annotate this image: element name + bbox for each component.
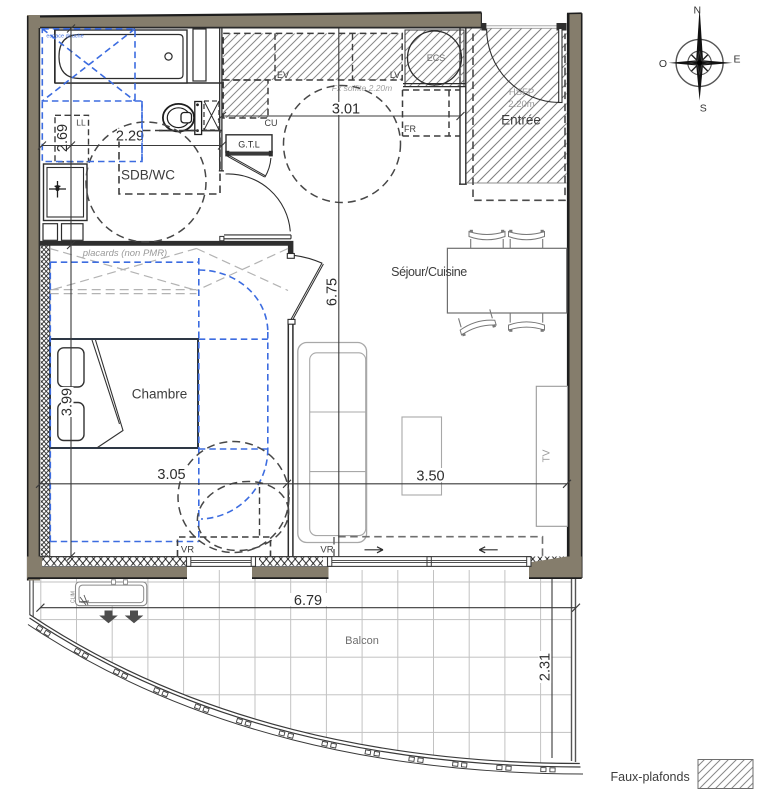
svg-text:HSFP: HSFP <box>509 87 534 98</box>
svg-text:Balcon: Balcon <box>345 635 379 647</box>
svg-text:S: S <box>700 103 707 115</box>
svg-text:VR: VR <box>181 545 194 556</box>
svg-text:3.50: 3.50 <box>416 469 444 485</box>
svg-text:Chambre: Chambre <box>132 387 188 402</box>
svg-text:CU: CU <box>265 118 278 128</box>
svg-text:Entrée: Entrée <box>501 113 541 128</box>
svg-text:3.01: 3.01 <box>332 102 360 118</box>
svg-text:3.99: 3.99 <box>60 388 76 416</box>
svg-text:espace douche: espace douche <box>46 34 83 40</box>
svg-text:LL: LL <box>76 118 86 128</box>
svg-text:3.05: 3.05 <box>157 467 185 483</box>
svg-text:E: E <box>733 54 740 66</box>
svg-text:2.20m: 2.20m <box>508 99 534 110</box>
svg-text:EV: EV <box>277 70 289 80</box>
svg-text:SDB/WC: SDB/WC <box>121 168 175 183</box>
svg-text:CLIM: CLIM <box>71 591 77 603</box>
svg-text:Faux-plafonds: Faux-plafonds <box>611 770 690 784</box>
svg-text:O: O <box>659 58 667 70</box>
svg-text:2.31: 2.31 <box>538 653 554 681</box>
svg-text:placards (non PMR): placards (non PMR) <box>82 248 167 259</box>
svg-text:Fx soffite 2.20m: Fx soffite 2.20m <box>332 83 392 93</box>
svg-text:6.75: 6.75 <box>325 278 341 306</box>
svg-text:Séjour/Cuisine: Séjour/Cuisine <box>391 265 467 279</box>
svg-text:2.69: 2.69 <box>55 124 71 152</box>
svg-text:TV: TV <box>542 449 553 462</box>
svg-text:N: N <box>694 5 702 17</box>
svg-text:VR: VR <box>320 545 333 556</box>
svg-text:FR: FR <box>404 124 416 134</box>
svg-text:ECS: ECS <box>427 53 446 63</box>
svg-text:G.T.L: G.T.L <box>238 140 260 150</box>
svg-text:6.79: 6.79 <box>294 593 322 609</box>
svg-text:LV: LV <box>390 70 400 80</box>
svg-text:2.29: 2.29 <box>116 129 144 145</box>
